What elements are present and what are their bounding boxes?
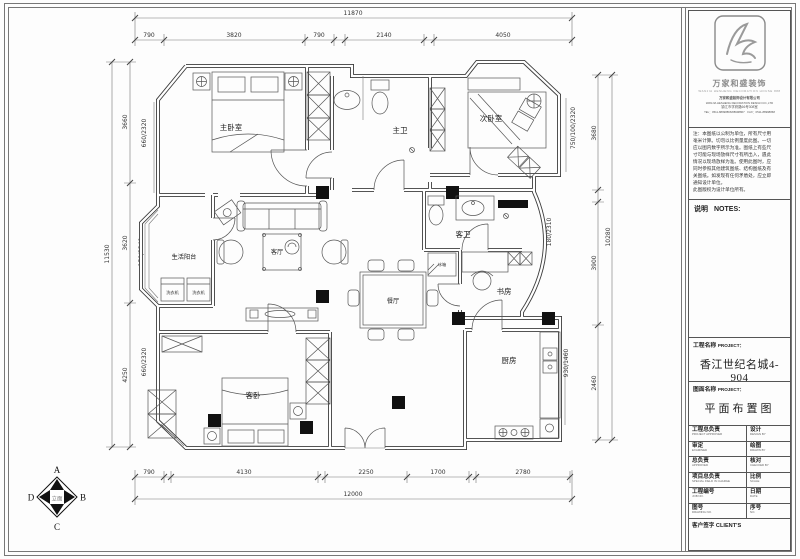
dim-label: 3620 bbox=[122, 235, 129, 250]
dim-left-overall: 11530 bbox=[104, 244, 111, 263]
project-name-value: 香江世纪名城4-904 bbox=[693, 356, 786, 384]
room-label-master-bath: 主卫 bbox=[393, 125, 408, 135]
dim-label: 2250 bbox=[358, 469, 373, 476]
note-line: 毫米计算。切勿以比例量度此图。一切 bbox=[693, 138, 786, 145]
table-row: 审定EXAMINED 绘图DRAWN BY bbox=[689, 442, 790, 458]
floor-plan: 11870 790 3820 790 2140 4050 790 4130 22… bbox=[0, 0, 690, 559]
dim-label: 790 bbox=[143, 32, 155, 39]
drawing-label-cn: 图面名称 bbox=[693, 387, 716, 393]
project-label-cn: 工程名称 bbox=[693, 343, 716, 349]
notes-blank-area bbox=[689, 218, 790, 337]
dim-label: 660/2320 bbox=[141, 347, 148, 376]
cell-sublabel: APPROVED bbox=[692, 464, 744, 467]
logo-mark bbox=[713, 14, 767, 72]
cell-sublabel: DRAWN BY bbox=[750, 449, 788, 452]
title-block-footer-space bbox=[689, 534, 790, 550]
table-row: 总负责APPROVED 核对CHECKED BY bbox=[689, 457, 790, 473]
note-line: 情况以现场放样为准。使用此图时，应 bbox=[693, 159, 786, 166]
cell-sublabel: SPECIAL FIELD IN CHARGE bbox=[692, 480, 744, 483]
table-row: 项目总负责SPECIAL FIELD IN CHARGE 比例SCALE bbox=[689, 473, 790, 489]
dim-label: 660/2320 bbox=[141, 118, 148, 147]
room-label-guest-bath: 客卫 bbox=[456, 229, 471, 239]
room-label-master-bedroom: 主卧室 bbox=[220, 122, 243, 132]
furniture bbox=[148, 72, 560, 448]
dim-label: 3660 bbox=[122, 114, 129, 129]
table-row: 工程总负责PROJECT APPROVER 设计DESIGN BY bbox=[689, 426, 790, 442]
room-label-dining: 餐厅 bbox=[387, 297, 399, 305]
room-label-study: 书房 bbox=[497, 286, 512, 296]
dim-label: 1700 bbox=[430, 469, 445, 476]
walls bbox=[141, 62, 566, 448]
elevation-marker-center: 立面 bbox=[51, 495, 63, 503]
elevation-marker: 立面 A B C D bbox=[28, 465, 86, 532]
brand-name-en: WANJIA HESHENG DECORATION HOUSE 888 bbox=[689, 89, 790, 93]
appliance-label-washer: 洗衣机 bbox=[166, 289, 179, 296]
drawing-label-en: PROJECT： bbox=[718, 387, 744, 392]
cell-sublabel: NO. bbox=[750, 511, 788, 514]
notes-label-en: NOTES: bbox=[714, 206, 740, 213]
dim-label: 790 bbox=[143, 469, 155, 476]
table-row: 工程编号JOB NO. 日期DATE bbox=[689, 488, 790, 504]
dim-label: 790 bbox=[313, 32, 325, 39]
appliance-label-fridge: 冰箱 bbox=[438, 261, 446, 268]
cell-sublabel: CHECKED BY bbox=[750, 464, 788, 467]
general-notes: 注：本图纸以公制为单位，所有尺寸用 毫米计算。切勿以比例量度此图。一切 应以图内… bbox=[689, 127, 790, 199]
dim-label: 2140 bbox=[376, 32, 391, 39]
room-label-guest-bedroom: 客卧 bbox=[246, 390, 261, 400]
room-label-second-bedroom: 次卧室 bbox=[480, 113, 503, 123]
dim-bottom-overall: 12000 bbox=[343, 491, 362, 498]
notes-label-cn: 说明 bbox=[694, 206, 708, 213]
elevation-marker-d: D bbox=[28, 493, 35, 503]
cell-sublabel: JOB NO. bbox=[692, 495, 744, 498]
brand-name: 万家和盛装饰 bbox=[689, 78, 790, 89]
room-label-living: 客厅 bbox=[271, 248, 283, 256]
note-line: 同时参照其他建筑图纸、结构图纸及有 bbox=[693, 166, 786, 173]
cell-sublabel: DESIGN BY bbox=[750, 433, 788, 436]
drawing-name-value: 平面布置图 bbox=[693, 400, 786, 416]
elevation-marker-b: B bbox=[80, 493, 86, 503]
dim-label: 4050 bbox=[495, 32, 510, 39]
dim-label: 4250 bbox=[122, 367, 129, 382]
elevation-marker-a: A bbox=[54, 465, 61, 475]
note-line: 寸可能与现场放样尺寸有所出入，遇此 bbox=[693, 152, 786, 159]
title-block: 万家和盛装饰 WANJIA HESHENG DECORATION HOUSE 8… bbox=[688, 10, 791, 551]
note-line: 通知设计单位。 bbox=[693, 180, 786, 187]
note-line: 注：本图纸以公制为单位，所有尺寸用 bbox=[693, 131, 786, 138]
drawing-name-section: 图面名称 PROJECT： 平面布置图 bbox=[689, 381, 790, 425]
company-line: TEL：0511-88998866/88998867 FAX：0511-8899… bbox=[689, 110, 790, 114]
note-line: 应以图内数字所示为准。图纸上有些尺 bbox=[693, 145, 786, 152]
dim-label: 750/100/2320 bbox=[570, 107, 577, 149]
company-info: 万家和盛装饰设计有限公司 WANJIA HESHENG DECORATION D… bbox=[689, 96, 790, 114]
company-logo-section: 万家和盛装饰 WANJIA HESHENG DECORATION HOUSE 8… bbox=[689, 11, 790, 127]
appliance-label-washer: 洗衣机 bbox=[192, 289, 205, 296]
signature-table: 工程总负责PROJECT APPROVER 设计DESIGN BY 审定EXAM… bbox=[689, 425, 790, 519]
dim-label: 3680 bbox=[591, 125, 598, 140]
dim-label: 930/1460 bbox=[563, 348, 570, 377]
project-label-en: PROJECT： bbox=[718, 343, 744, 348]
dim-top-overall: 11870 bbox=[343, 10, 362, 17]
notes-heading: 说明NOTES: bbox=[689, 199, 790, 218]
dim-label: 3900 bbox=[591, 255, 598, 270]
cell-sublabel: EXAMINED bbox=[692, 449, 744, 452]
dim-label: 3820 bbox=[226, 32, 241, 39]
elevation-marker-c: C bbox=[54, 522, 60, 532]
project-name-section: 工程名称 PROJECT： 香江世纪名城4-904 bbox=[689, 337, 790, 381]
cell-sublabel: PROJECT APPROVER bbox=[692, 433, 744, 436]
cell-sublabel: DATE bbox=[750, 495, 788, 498]
note-line: 此图版权为设计单位所有。 bbox=[693, 187, 786, 194]
dim-label: 2780 bbox=[515, 469, 530, 476]
cell-sublabel: SCALE bbox=[750, 480, 788, 483]
table-row: 图号DRAWING NO. 序号NO. bbox=[689, 504, 790, 520]
dim-label: 2460 bbox=[591, 375, 598, 390]
dim-right-overall: 10280 bbox=[605, 227, 612, 246]
client-signature-row: 客户签字 CLIENT'S bbox=[689, 519, 790, 534]
dim-label: 4130 bbox=[236, 469, 251, 476]
room-label-balcony: 生活阳台 bbox=[172, 253, 197, 261]
drawing-sheet: 11870 790 3820 790 2140 4050 790 4130 22… bbox=[0, 0, 800, 559]
cell-sublabel: DRAWING NO. bbox=[692, 511, 744, 514]
room-label-kitchen: 厨房 bbox=[502, 355, 517, 365]
note-line: 关图纸。如发现有任何矛盾处，应立即 bbox=[693, 173, 786, 180]
